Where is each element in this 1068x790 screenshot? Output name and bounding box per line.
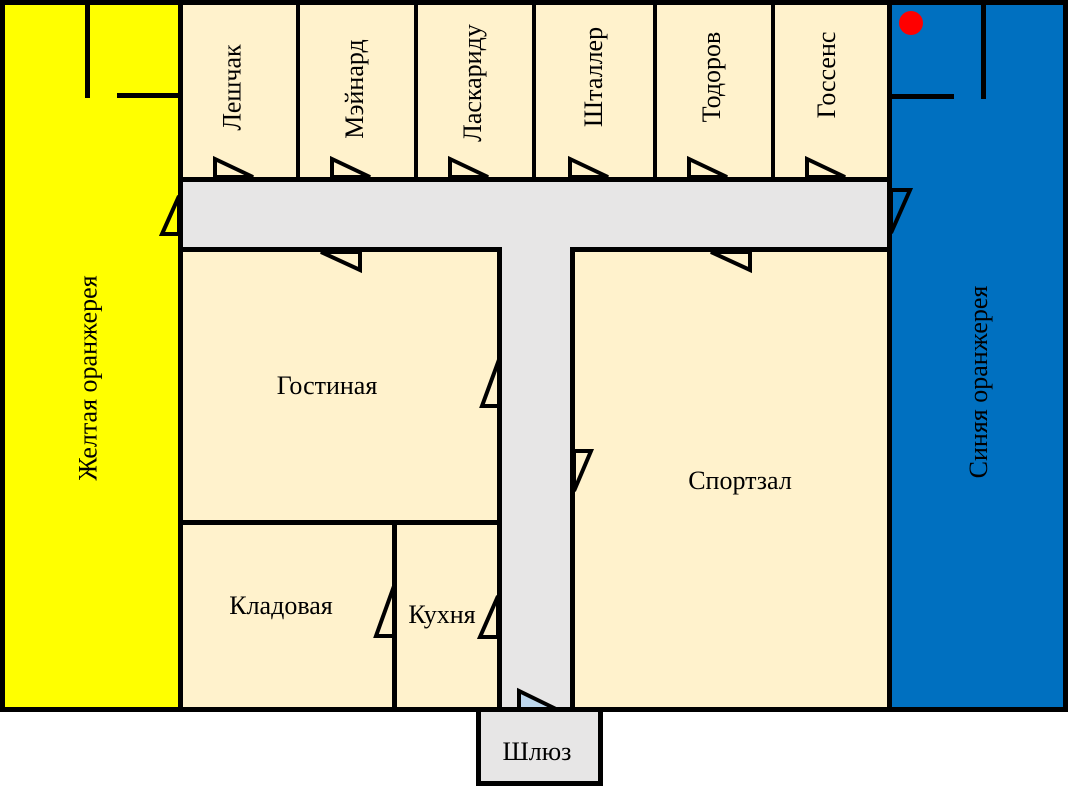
svg-text:Шталлер: Шталлер xyxy=(579,27,608,127)
svg-text:Тодоров: Тодоров xyxy=(697,32,726,123)
svg-text:Кухня: Кухня xyxy=(408,600,475,629)
svg-text:Кладовая: Кладовая xyxy=(229,591,333,620)
svg-text:Гостиная: Гостиная xyxy=(277,371,378,400)
svg-text:Госсенс: Госсенс xyxy=(812,32,841,119)
svg-text:Желтая оранжерея: Желтая оранжерея xyxy=(74,275,103,480)
svg-text:Синяя оранжерея: Синяя оранжерея xyxy=(964,286,993,479)
svg-text:Спортзал: Спортзал xyxy=(688,466,792,495)
svg-text:Ласкариду: Ласкариду xyxy=(458,24,487,142)
svg-text:Лешчак: Лешчак xyxy=(218,44,247,131)
svg-text:Шлюз: Шлюз xyxy=(503,737,572,766)
svg-text:Мэйнард: Мэйнард xyxy=(340,39,369,139)
